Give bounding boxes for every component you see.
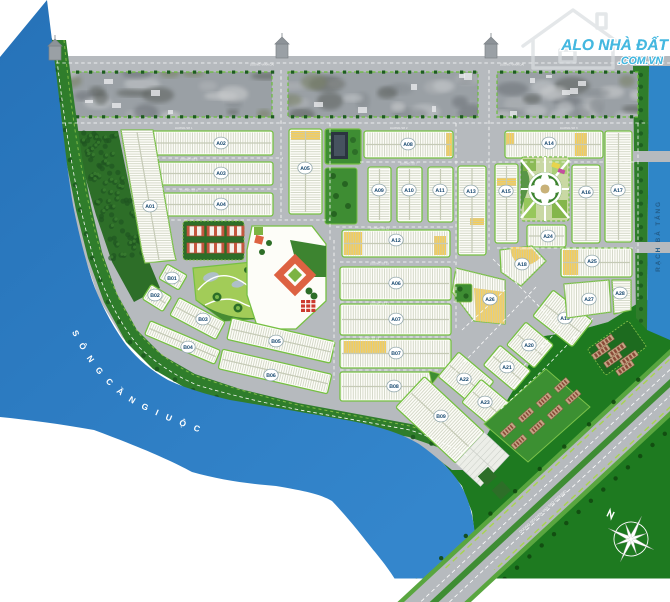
svg-text:A17: A17 (613, 188, 623, 194)
svg-text:A01: A01 (145, 204, 155, 210)
svg-text:A14: A14 (544, 141, 554, 147)
svg-text:A13: A13 (466, 189, 476, 195)
svg-text:.COM.VN: .COM.VN (618, 55, 663, 67)
svg-text:A27: A27 (584, 297, 594, 303)
svg-text:B01: B01 (167, 276, 177, 282)
svg-text:A20: A20 (524, 343, 534, 349)
svg-text:B08: B08 (389, 384, 399, 390)
svg-text:B05: B05 (271, 339, 281, 345)
svg-text:DUONG SO 15: DUONG SO 15 (370, 262, 390, 266)
svg-text:A24: A24 (543, 234, 553, 240)
svg-text:A12: A12 (391, 238, 401, 244)
svg-text:A10: A10 (404, 188, 414, 194)
svg-text:A02: A02 (216, 141, 226, 147)
svg-text:A03: A03 (216, 171, 226, 177)
svg-text:DUONG SO 5: DUONG SO 5 (180, 158, 198, 162)
svg-text:A11: A11 (435, 188, 444, 194)
svg-text:DUONG SO 11: DUONG SO 11 (370, 227, 389, 231)
svg-text:B02: B02 (150, 293, 160, 299)
svg-text:DUONG SO 3: DUONG SO 3 (560, 126, 578, 130)
svg-text:B06: B06 (266, 373, 276, 379)
svg-text:A21: A21 (502, 365, 512, 371)
svg-text:RẠCH BÀ TẮNG: RẠCH BÀ TẮNG (654, 200, 662, 272)
svg-text:A09: A09 (374, 188, 384, 194)
svg-text:A07: A07 (391, 317, 401, 323)
svg-text:A25: A25 (587, 259, 597, 265)
svg-text:A15: A15 (501, 189, 511, 195)
svg-text:A06: A06 (391, 281, 401, 287)
svg-text:A08: A08 (403, 142, 413, 148)
svg-text:A26: A26 (485, 297, 495, 303)
svg-text:DUONG SO 2: DUONG SO 2 (390, 126, 408, 130)
svg-text:A04: A04 (216, 202, 226, 208)
svg-text:A22: A22 (459, 377, 469, 383)
svg-text:B04: B04 (183, 345, 193, 351)
svg-text:DUONG SO 9: DUONG SO 9 (180, 189, 198, 193)
svg-text:A05: A05 (300, 166, 310, 172)
svg-text:ALO NHÀ ĐẤT: ALO NHÀ ĐẤT (560, 36, 669, 54)
svg-text:B03: B03 (198, 317, 208, 323)
svg-text:DUONG SO 1: DUONG SO 1 (175, 126, 193, 130)
svg-text:DUONG VANH DAI: DUONG VANH DAI (250, 63, 274, 67)
svg-text:DUONG SO 13: DUONG SO 13 (520, 247, 540, 251)
svg-text:DUONG SO 17: DUONG SO 17 (370, 302, 390, 306)
svg-text:A28: A28 (615, 291, 625, 297)
svg-text:A23: A23 (480, 400, 490, 406)
svg-text:DUONG VANH DAI: DUONG VANH DAI (500, 63, 524, 67)
svg-text:A16: A16 (581, 190, 591, 196)
svg-text:B07: B07 (391, 351, 401, 357)
svg-text:DUONG SO 19: DUONG SO 19 (360, 337, 380, 341)
svg-text:B09: B09 (436, 414, 446, 420)
svg-text:DUONG SO 7: DUONG SO 7 (400, 162, 418, 166)
svg-text:A18: A18 (517, 262, 527, 268)
